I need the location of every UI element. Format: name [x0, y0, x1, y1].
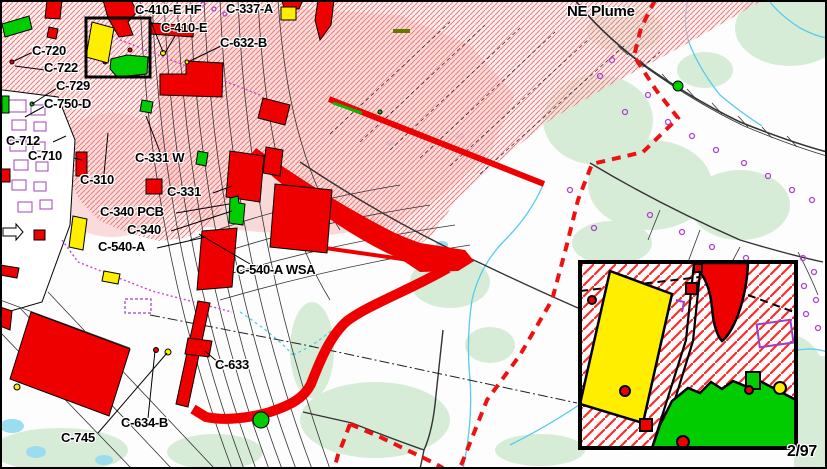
- label-c-750-d: C-750-D: [44, 97, 91, 110]
- site-map[interactable]: C-410-E HF C-337-A C-410-E C-632-B NE Pl…: [0, 0, 827, 469]
- label-c-745: C-745: [61, 431, 95, 444]
- label-c-410-e-hf: C-410-E HF: [135, 3, 201, 16]
- label-c-720: C-720: [32, 44, 66, 57]
- label-c-729: C-729: [56, 79, 90, 92]
- label-c-410-e: C-410-E: [161, 21, 207, 34]
- label-c-340-pcb: C-340 PCB: [100, 205, 164, 218]
- label-c-633: C-633: [215, 358, 249, 371]
- date-stamp: 2/97: [787, 444, 817, 460]
- label-c-331-w: C-331 W: [135, 151, 184, 164]
- map-canvas[interactable]: [0, 0, 827, 469]
- inset-magnified-view: [580, 262, 796, 448]
- label-c-340: C-340: [127, 223, 161, 236]
- label-c-634-b: C-634-B: [121, 416, 168, 429]
- label-ne-plume: NE Plume: [567, 4, 635, 19]
- label-c-331: C-331: [167, 185, 201, 198]
- label-c-710: C-710: [28, 149, 62, 162]
- label-c-712: C-712: [6, 134, 40, 147]
- label-c-632-b: C-632-B: [220, 36, 267, 49]
- label-c-540-a-wsa: C-540-A WSA: [236, 263, 315, 276]
- label-c-337-a: C-337-A: [226, 2, 273, 15]
- label-c-722: C-722: [44, 61, 78, 74]
- label-c-540-a: C-540-A: [98, 240, 145, 253]
- label-c-310: C-310: [80, 173, 114, 186]
